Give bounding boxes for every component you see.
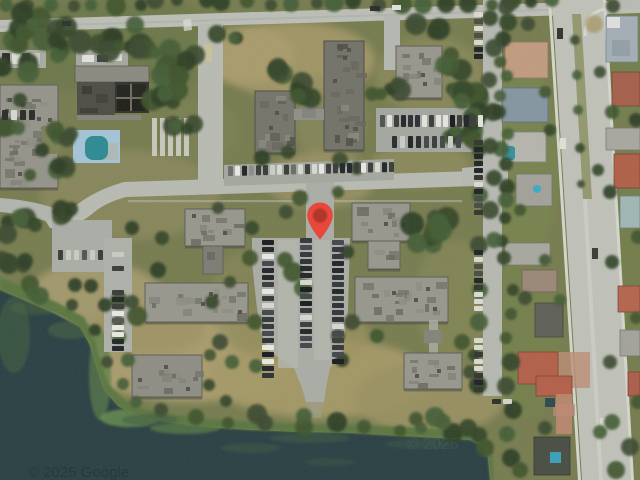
svg-text:© 2025: © 2025: [407, 436, 459, 453]
svg-text:© 2025 Google: © 2025 Google: [28, 464, 129, 480]
